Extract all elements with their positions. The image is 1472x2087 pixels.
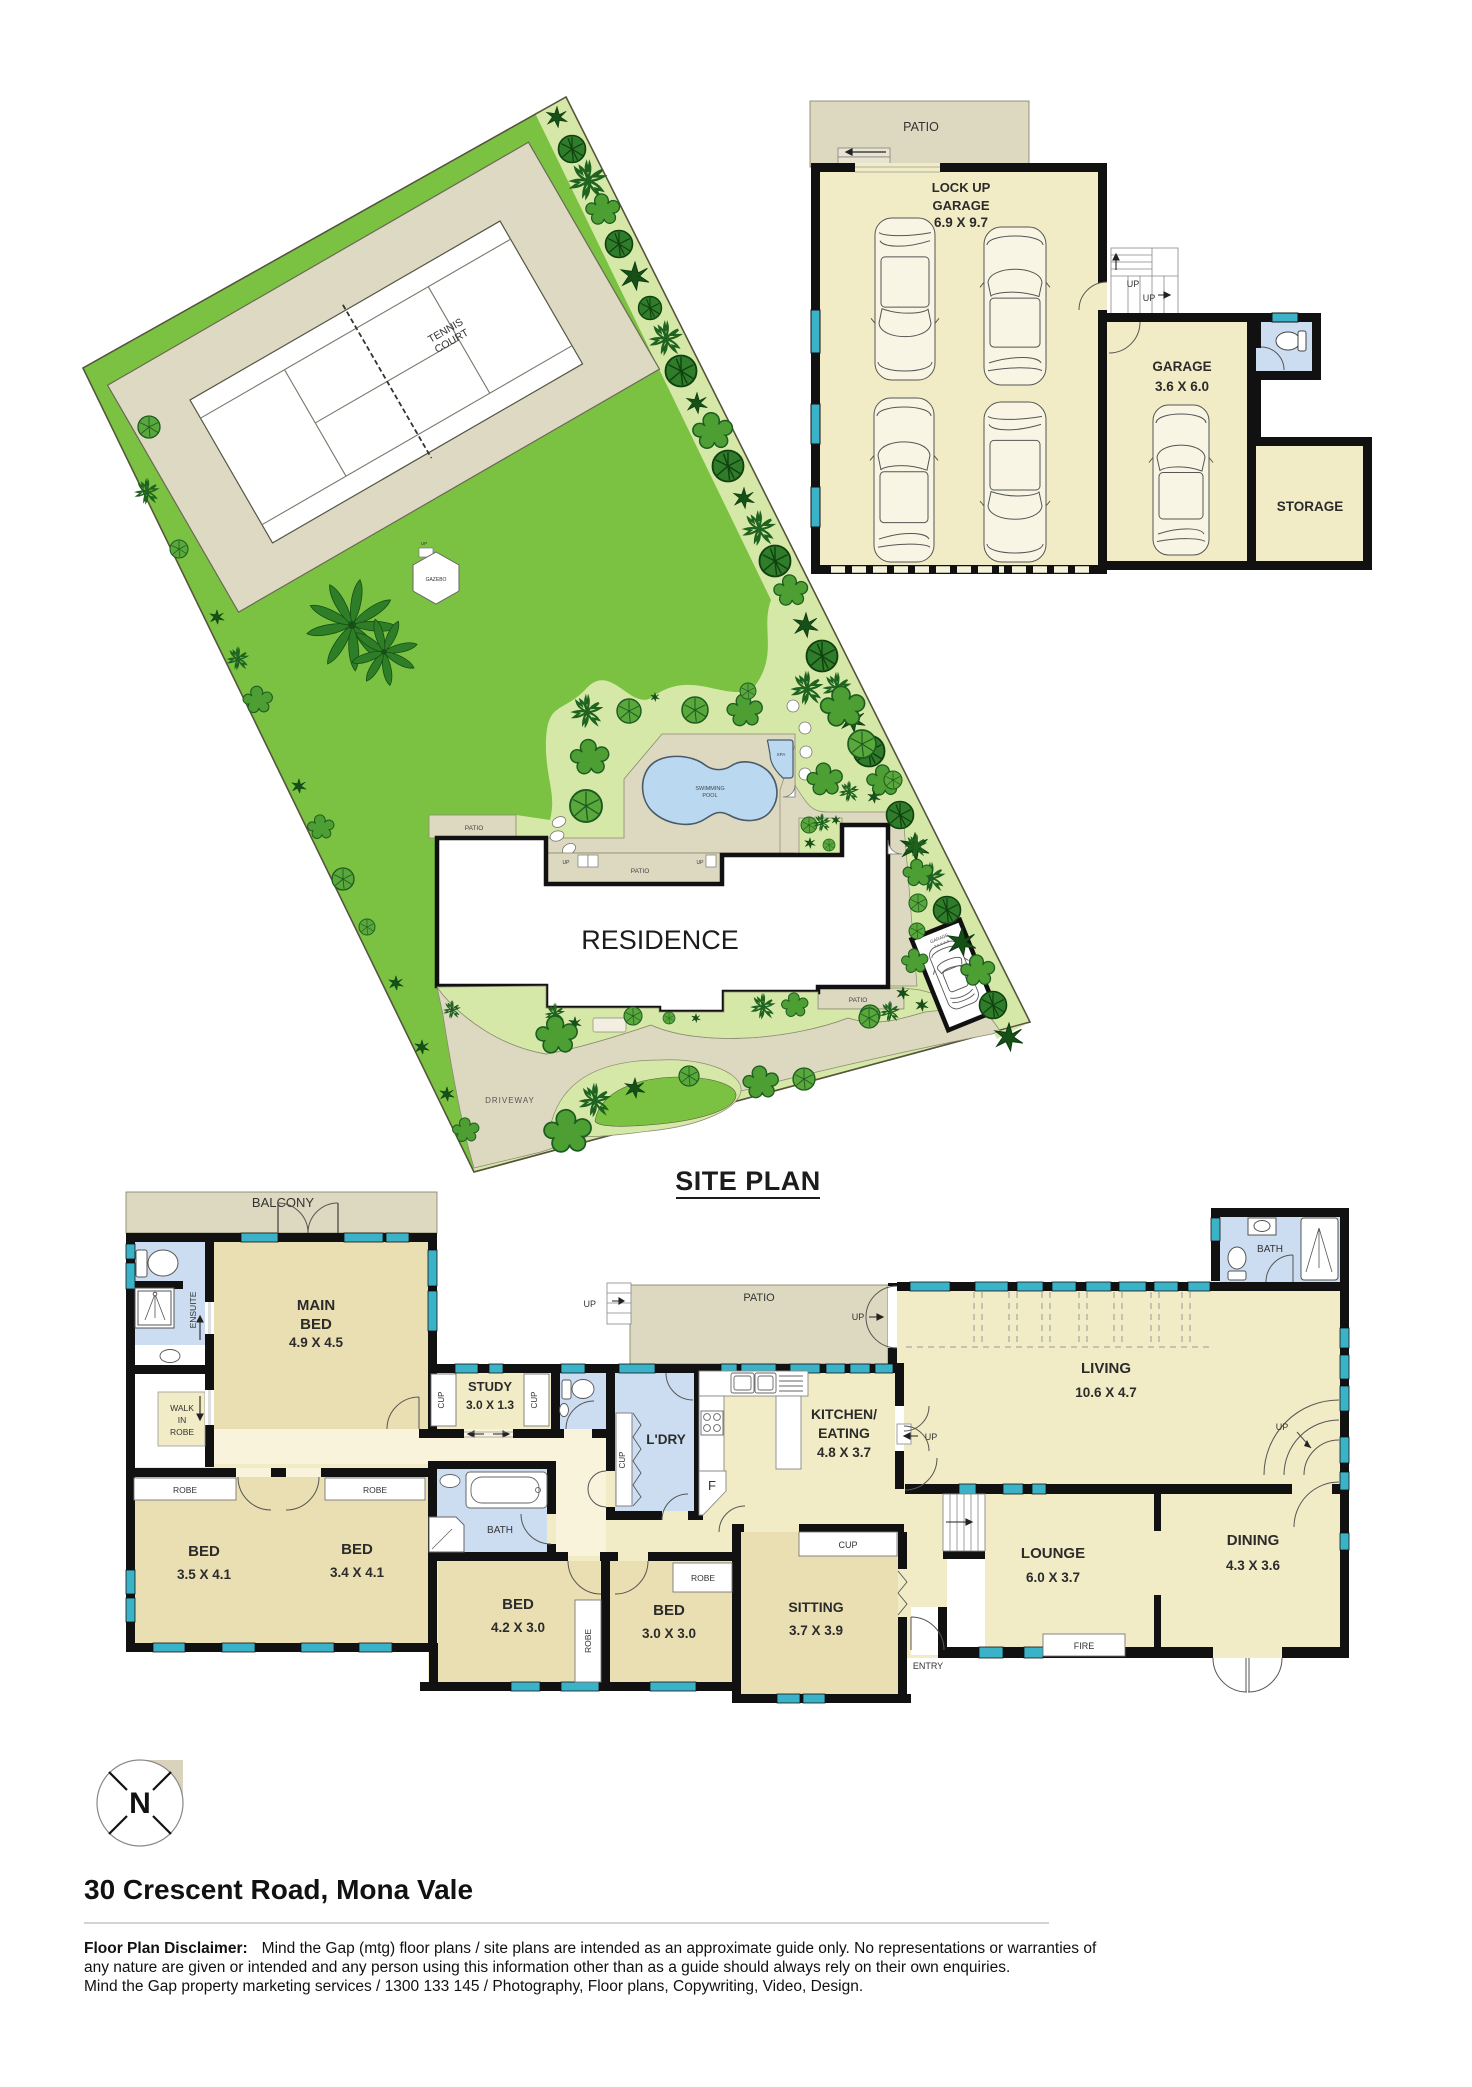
svg-text:SPA: SPA	[777, 752, 786, 757]
svg-text:PATIO: PATIO	[903, 120, 939, 134]
svg-text:UP: UP	[1276, 1422, 1289, 1432]
svg-text:GARAGE: GARAGE	[932, 198, 989, 213]
svg-text:BATH: BATH	[487, 1525, 513, 1536]
svg-text:MAIN: MAIN	[297, 1297, 335, 1314]
svg-text:CUP: CUP	[618, 1452, 627, 1469]
svg-text:KITCHEN/: KITCHEN/	[811, 1406, 877, 1422]
svg-text:3.4 X 4.1: 3.4 X 4.1	[330, 1565, 385, 1580]
svg-text:3.6 X 6.0: 3.6 X 6.0	[1155, 379, 1209, 394]
svg-text:CUP: CUP	[437, 1392, 446, 1409]
svg-text:ROBE: ROBE	[170, 1427, 194, 1437]
svg-text:4.2 X 3.0: 4.2 X 3.0	[491, 1620, 545, 1635]
svg-text:BED: BED	[300, 1316, 332, 1333]
svg-text:ROBE: ROBE	[363, 1485, 387, 1495]
svg-text:UP: UP	[1143, 293, 1156, 303]
svg-text:GARAGE: GARAGE	[1152, 359, 1211, 374]
svg-text:10.6 X 4.7: 10.6 X 4.7	[1075, 1385, 1137, 1400]
svg-text:UP: UP	[852, 1312, 865, 1322]
svg-text:N: N	[129, 1787, 151, 1820]
svg-text:BED: BED	[653, 1602, 685, 1619]
svg-text:4.3 X 3.6: 4.3 X 3.6	[1226, 1558, 1281, 1573]
svg-text:F: F	[708, 1478, 716, 1493]
svg-text:RESIDENCE: RESIDENCE	[581, 925, 739, 955]
svg-text:6.9 X 9.7: 6.9 X 9.7	[934, 215, 988, 230]
svg-text:CUP: CUP	[838, 1540, 857, 1550]
svg-text:PATIO: PATIO	[743, 1292, 775, 1304]
svg-text:PATIO: PATIO	[631, 868, 650, 875]
svg-text:POOL: POOL	[702, 793, 717, 799]
svg-text:SWIMMING: SWIMMING	[695, 786, 724, 792]
svg-text:3.0 X 3.0: 3.0 X 3.0	[642, 1626, 696, 1641]
svg-text:PATIO: PATIO	[465, 825, 484, 832]
svg-text:6.0 X 3.7: 6.0 X 3.7	[1026, 1570, 1080, 1585]
svg-text:WALK: WALK	[170, 1403, 194, 1413]
svg-text:UP: UP	[421, 541, 427, 546]
svg-text:DRIVEWAY: DRIVEWAY	[485, 1096, 535, 1105]
svg-text:IN: IN	[178, 1415, 187, 1425]
svg-text:CUP: CUP	[530, 1392, 539, 1409]
svg-text:ENTRY: ENTRY	[913, 1661, 943, 1671]
svg-text:ENSUITE: ENSUITE	[188, 1291, 198, 1328]
svg-text:STUDY: STUDY	[468, 1379, 512, 1394]
svg-text:BATH: BATH	[1257, 1244, 1283, 1255]
svg-text:LOCK UP: LOCK UP	[932, 180, 991, 195]
svg-text:LIVING: LIVING	[1081, 1360, 1131, 1377]
svg-text:UP: UP	[563, 860, 571, 866]
svg-text:BALCONY: BALCONY	[252, 1195, 314, 1210]
svg-text:LOUNGE: LOUNGE	[1021, 1545, 1085, 1562]
svg-text:4.8 X 3.7: 4.8 X 3.7	[817, 1445, 871, 1460]
svg-text:ROBE: ROBE	[691, 1573, 715, 1583]
svg-text:BED: BED	[341, 1541, 373, 1558]
svg-text:PATIO: PATIO	[849, 997, 868, 1004]
svg-text:L'DRY: L'DRY	[646, 1432, 685, 1447]
svg-text:4.9 X 4.5: 4.9 X 4.5	[289, 1335, 344, 1350]
svg-text:3.5 X 4.1: 3.5 X 4.1	[177, 1567, 232, 1582]
svg-text:SITE PLAN: SITE PLAN	[675, 1166, 821, 1196]
svg-text:Floor Plan Disclaimer:Mind the: Floor Plan Disclaimer:Mind the Gap (mtg)…	[84, 1940, 1097, 1957]
svg-text:ROBE: ROBE	[583, 1629, 593, 1653]
svg-text:GAZEBO: GAZEBO	[426, 577, 447, 583]
svg-text:3.0 X 1.3: 3.0 X 1.3	[466, 1398, 514, 1412]
svg-text:EATING: EATING	[818, 1425, 870, 1441]
svg-text:UP: UP	[583, 1299, 596, 1309]
svg-text:UP: UP	[1127, 279, 1140, 289]
svg-text:30 Crescent Road, Mona Vale: 30 Crescent Road, Mona Vale	[84, 1874, 473, 1905]
svg-text:ROBE: ROBE	[173, 1485, 197, 1495]
svg-text:UP: UP	[697, 860, 705, 866]
svg-text:Mind the Gap property marketin: Mind the Gap property marketing services…	[84, 1978, 863, 1995]
svg-text:SITTING: SITTING	[788, 1599, 843, 1615]
svg-text:STORAGE: STORAGE	[1277, 499, 1344, 514]
svg-text:FIRE: FIRE	[1074, 1641, 1095, 1651]
svg-text:DINING: DINING	[1227, 1532, 1280, 1549]
svg-text:3.7 X 3.9: 3.7 X 3.9	[789, 1623, 843, 1638]
svg-text:BED: BED	[188, 1543, 220, 1560]
svg-text:BED: BED	[502, 1596, 534, 1613]
svg-text:any nature are given or intend: any nature are given or intended and any…	[84, 1959, 1010, 1976]
